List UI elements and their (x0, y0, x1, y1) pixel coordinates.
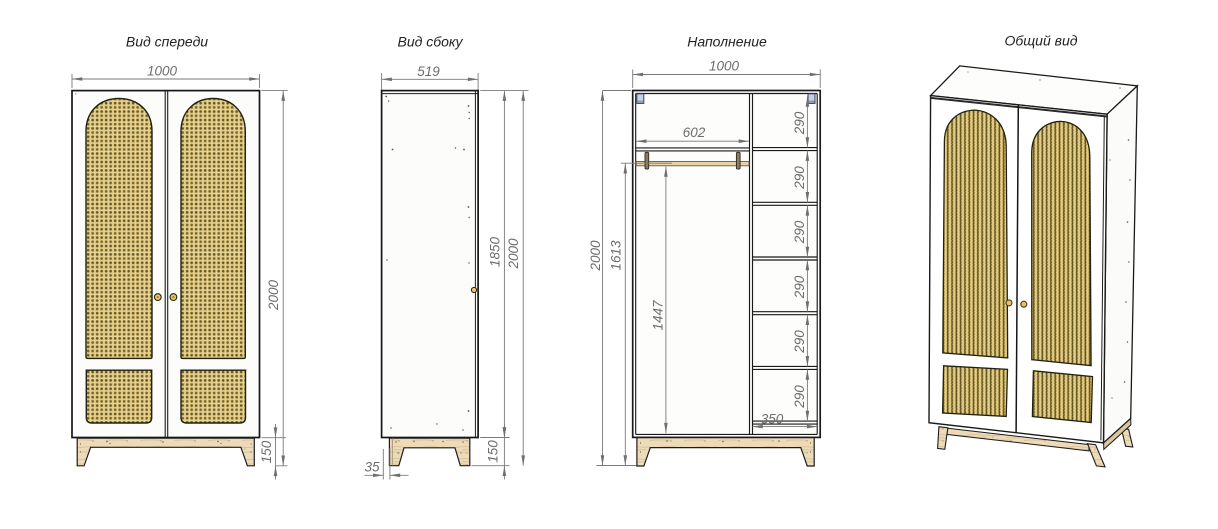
svg-text:602: 602 (683, 125, 706, 140)
svg-text:Вид спереди: Вид спереди (126, 34, 208, 50)
svg-text:Общий вид: Общий вид (1005, 33, 1078, 49)
svg-text:1000: 1000 (147, 64, 178, 79)
svg-text:1447: 1447 (651, 300, 666, 331)
svg-text:290: 290 (792, 166, 807, 190)
svg-text:150: 150 (259, 440, 274, 463)
svg-text:2000: 2000 (506, 238, 521, 270)
svg-text:350: 350 (761, 412, 784, 427)
svg-text:35: 35 (364, 460, 380, 475)
svg-text:150: 150 (486, 440, 501, 463)
svg-text:290: 290 (792, 220, 807, 244)
svg-text:290: 290 (792, 111, 807, 135)
svg-text:1613: 1613 (609, 240, 624, 271)
svg-text:2000: 2000 (266, 279, 281, 311)
svg-text:1850: 1850 (488, 236, 503, 267)
svg-text:290: 290 (792, 330, 807, 354)
svg-text:519: 519 (417, 64, 440, 79)
svg-text:1000: 1000 (709, 59, 740, 74)
svg-text:Наполнение: Наполнение (687, 34, 767, 50)
svg-text:290: 290 (792, 275, 807, 299)
svg-text:2000: 2000 (588, 240, 603, 272)
svg-text:Вид сбоку: Вид сбоку (397, 34, 463, 50)
svg-text:290: 290 (792, 385, 807, 409)
